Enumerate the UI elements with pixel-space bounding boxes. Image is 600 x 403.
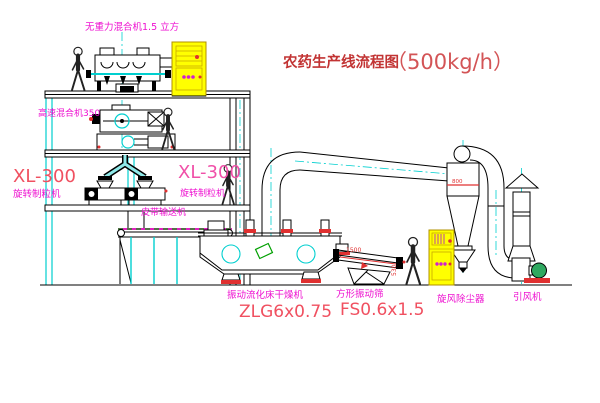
label-cyclone-name: 旋风除尘器	[437, 293, 485, 305]
exhaust-stack	[506, 174, 538, 261]
label-dryer-name: 振动流化床干燥机	[227, 289, 304, 301]
label-belt-conveyor: 皮带输送机	[141, 206, 186, 218]
label-granulator-left-name: 旋转制粒机	[13, 188, 61, 200]
label-granulator-left-model: XL-300	[13, 166, 76, 187]
control-cabinet-top	[172, 42, 206, 96]
person-ground	[407, 238, 421, 285]
label-screen-name: 方形振动筛	[336, 288, 384, 300]
person-top-floor	[72, 47, 84, 90]
label-fan-name: 引风机	[513, 291, 542, 303]
label-dryer-model: ZLG6x0.75	[239, 302, 332, 322]
label-granulator-right-model: XL-300	[178, 162, 241, 183]
y-duct	[98, 155, 152, 180]
rotary-granulator-right	[125, 181, 168, 205]
control-cabinet-bottom	[429, 230, 454, 285]
high-speed-mixer	[89, 105, 175, 150]
dim-screen-length: 1500	[346, 247, 361, 254]
diagram-title-capacity: （500kg/h）	[386, 50, 514, 74]
induced-draft-fan	[512, 258, 550, 283]
diagram-title: 农药生产线流程图	[282, 53, 399, 71]
dim-screen-height: 530	[391, 264, 398, 276]
dim-cyclone-diameter: 800	[452, 179, 463, 185]
rotary-granulator-left	[85, 181, 128, 205]
label-screen-model: FS0.6x1.5	[340, 300, 424, 320]
label-gravity-mixer: 无重力混合机1.5 立方	[85, 21, 179, 33]
label-high-speed-mixer: 高速混合机350	[38, 107, 100, 119]
label-granulator-right-name: 旋转制粒机	[180, 187, 225, 199]
cad-flow-diagram: 无重力混合机1.5 立方 农药生产线流程图 （500kg/h） 高速混合机350…	[0, 0, 600, 403]
gravity-free-mixer	[86, 48, 179, 92]
diagram-canvas: 无重力混合机1.5 立方 农药生产线流程图 （500kg/h） 高速混合机350…	[0, 0, 600, 403]
